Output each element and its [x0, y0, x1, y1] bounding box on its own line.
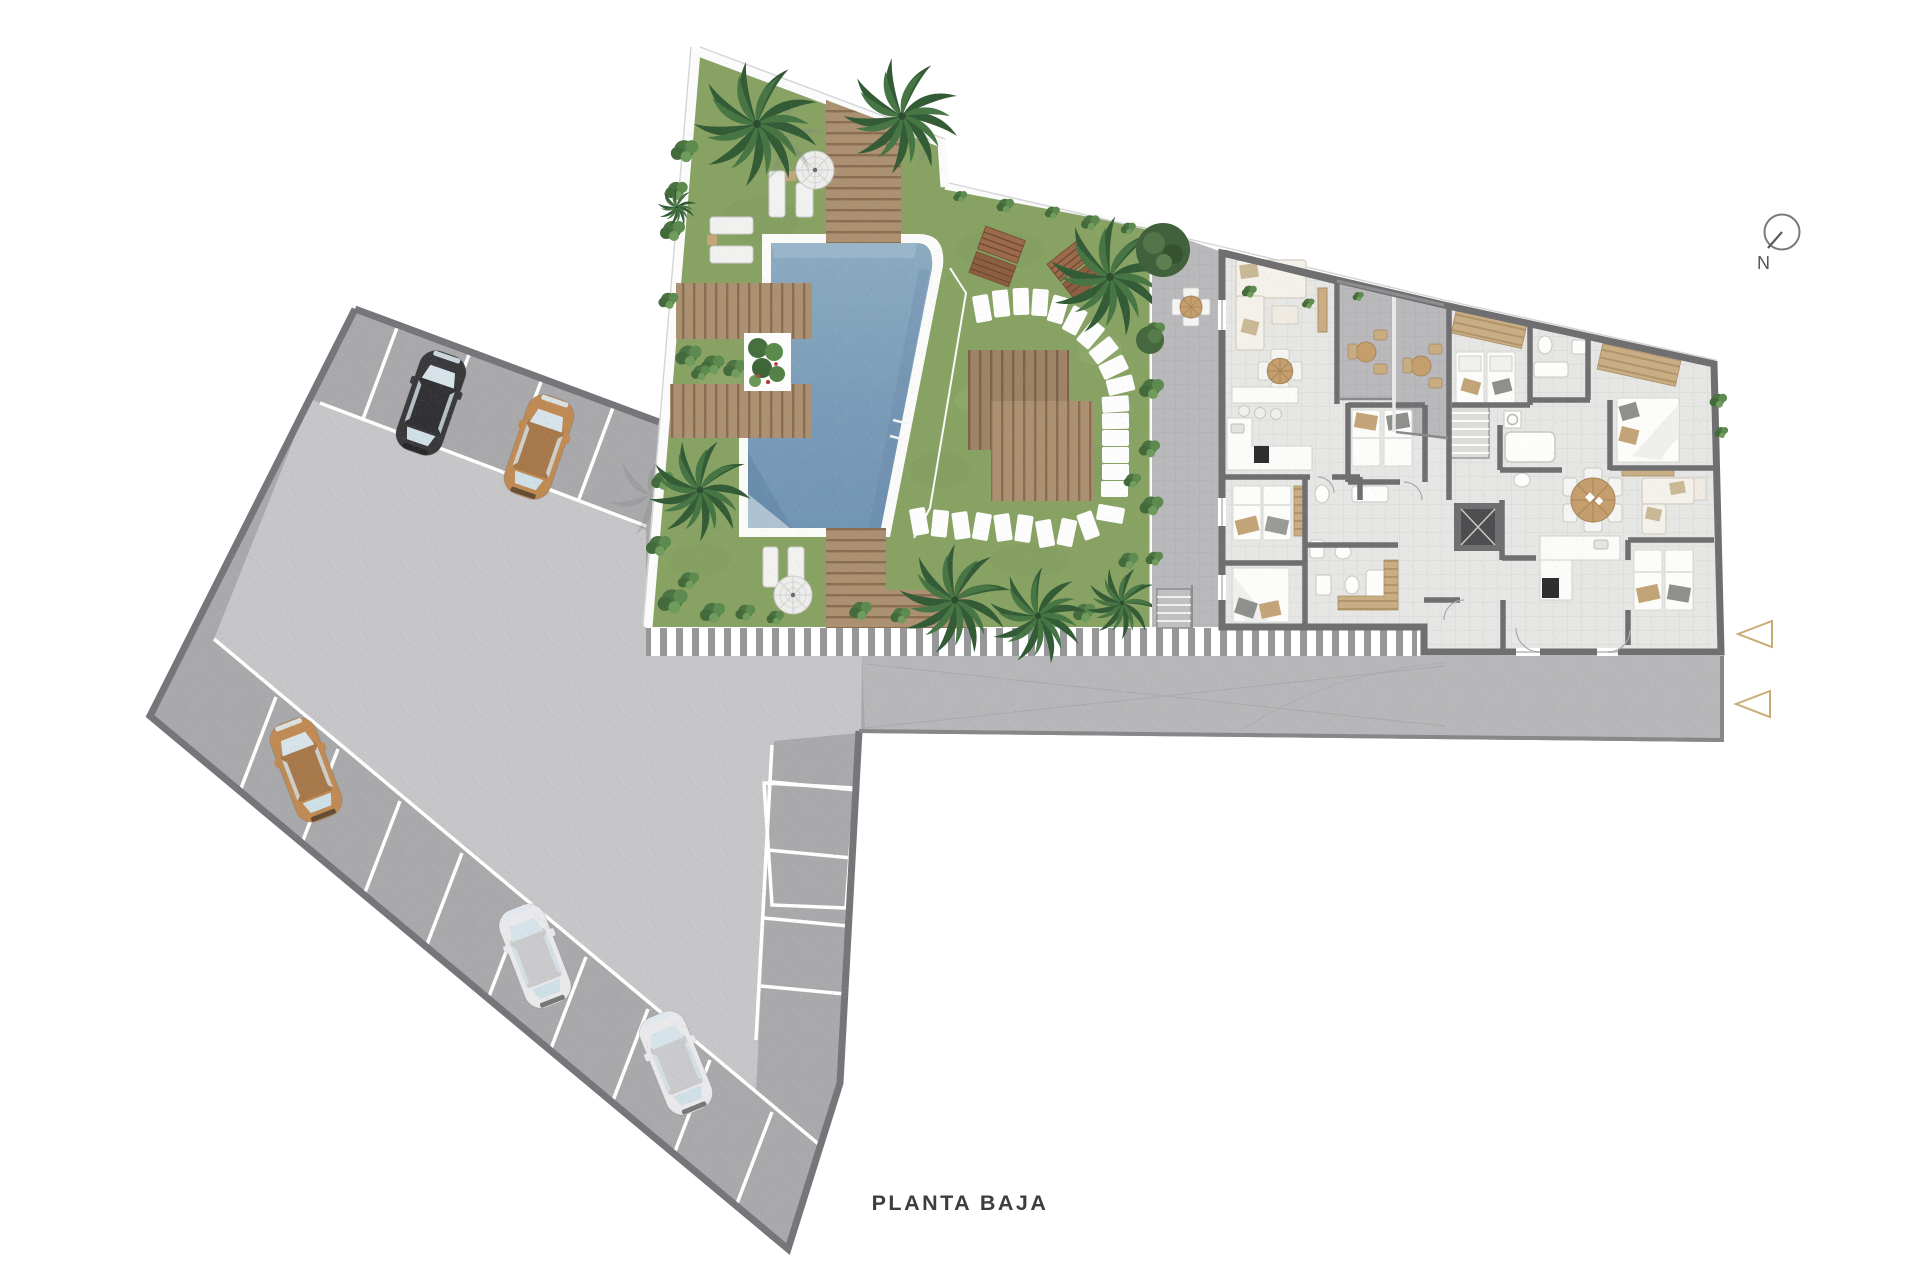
svg-text:PLANTA BAJA: PLANTA BAJA	[872, 1191, 1049, 1215]
svg-text:N: N	[1757, 253, 1770, 273]
